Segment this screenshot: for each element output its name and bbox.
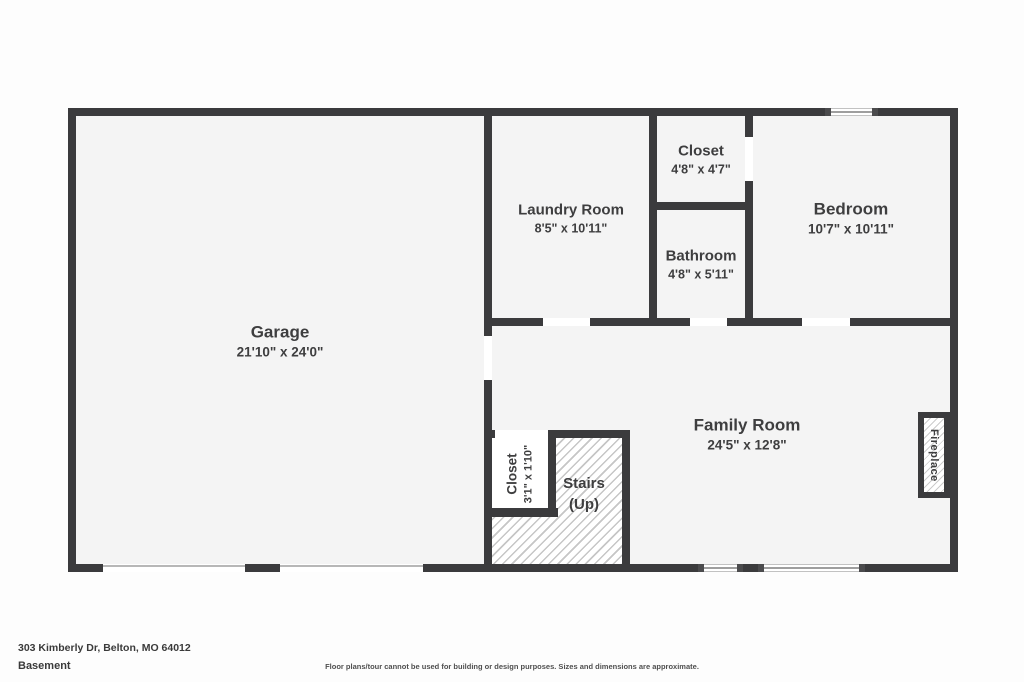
fireplace-label: Fireplace	[928, 429, 940, 482]
garage-door-line	[103, 565, 245, 567]
wall-closet-bathroom	[657, 202, 753, 210]
room-label-bedroom: Bedroom 10'7" x 10'11"	[808, 200, 894, 239]
room-dims: 3'1" x 1'10"	[523, 445, 536, 503]
room-name: Bedroom	[808, 200, 894, 220]
room-name: Closet	[504, 445, 520, 503]
family-room-window	[698, 564, 743, 572]
room-label-family-room: Family Room 24'5" x 12'8"	[694, 416, 801, 455]
wall-stair-closet-bottom	[484, 508, 558, 517]
room-label-stair-closet: Closet 3'1" x 1'10"	[504, 445, 535, 503]
room-dims: 4'8" x 5'11"	[666, 268, 737, 283]
room-dims: 24'5" x 12'8"	[694, 438, 801, 454]
wall-stairs-left	[548, 430, 556, 517]
footer-disclaimer: Floor plans/tour cannot be used for buil…	[0, 662, 1024, 671]
footer-address: 303 Kimberly Dr, Belton, MO 64012	[18, 642, 191, 654]
door-stair-closet	[495, 430, 548, 438]
window-glass-line	[704, 567, 737, 569]
room-label-bathroom: Bathroom 4'8" x 5'11"	[666, 248, 737, 283]
room-dims: 8'5" x 10'11"	[518, 222, 624, 237]
bedroom-window	[825, 108, 878, 116]
garage-door-opening	[280, 564, 423, 572]
room-name: Bathroom	[666, 248, 737, 266]
garage-door-opening	[103, 564, 245, 572]
window-glass-line	[764, 567, 859, 569]
room-dims: (Up)	[563, 494, 605, 515]
room-label-garage: Garage 21'10" x 24'0"	[237, 323, 324, 362]
floor-plan: Fireplace Garage 21'10" x 24'0" Laundry …	[0, 0, 1024, 682]
room-name: Garage	[237, 323, 324, 343]
window-glass-line	[831, 111, 872, 113]
family-room-window	[758, 564, 865, 572]
room-dims: 10'7" x 10'11"	[808, 222, 894, 238]
room-label-laundry: Laundry Room 8'5" x 10'11"	[518, 202, 624, 237]
door-bedroom	[802, 318, 850, 326]
room-label-stairs: Stairs (Up)	[563, 473, 605, 515]
room-dims: 21'10" x 24'0"	[237, 345, 324, 361]
door-bathroom	[690, 318, 727, 326]
door-closet-bedroom	[745, 137, 753, 181]
wall-stairs-right	[622, 430, 630, 564]
room-name: Stairs	[563, 473, 605, 494]
wall-laundry-closet	[649, 116, 657, 326]
room-label-closet: Closet 4'8" x 4'7"	[671, 143, 731, 178]
room-name: Closet	[671, 143, 731, 161]
door-laundry	[543, 318, 590, 326]
room-dims: 4'8" x 4'7"	[671, 163, 731, 178]
room-name: Laundry Room	[518, 202, 624, 220]
garage-door-line	[280, 565, 423, 567]
fireplace: Fireplace	[918, 412, 950, 498]
room-name: Family Room	[694, 416, 801, 436]
door-garage-family	[484, 336, 492, 380]
